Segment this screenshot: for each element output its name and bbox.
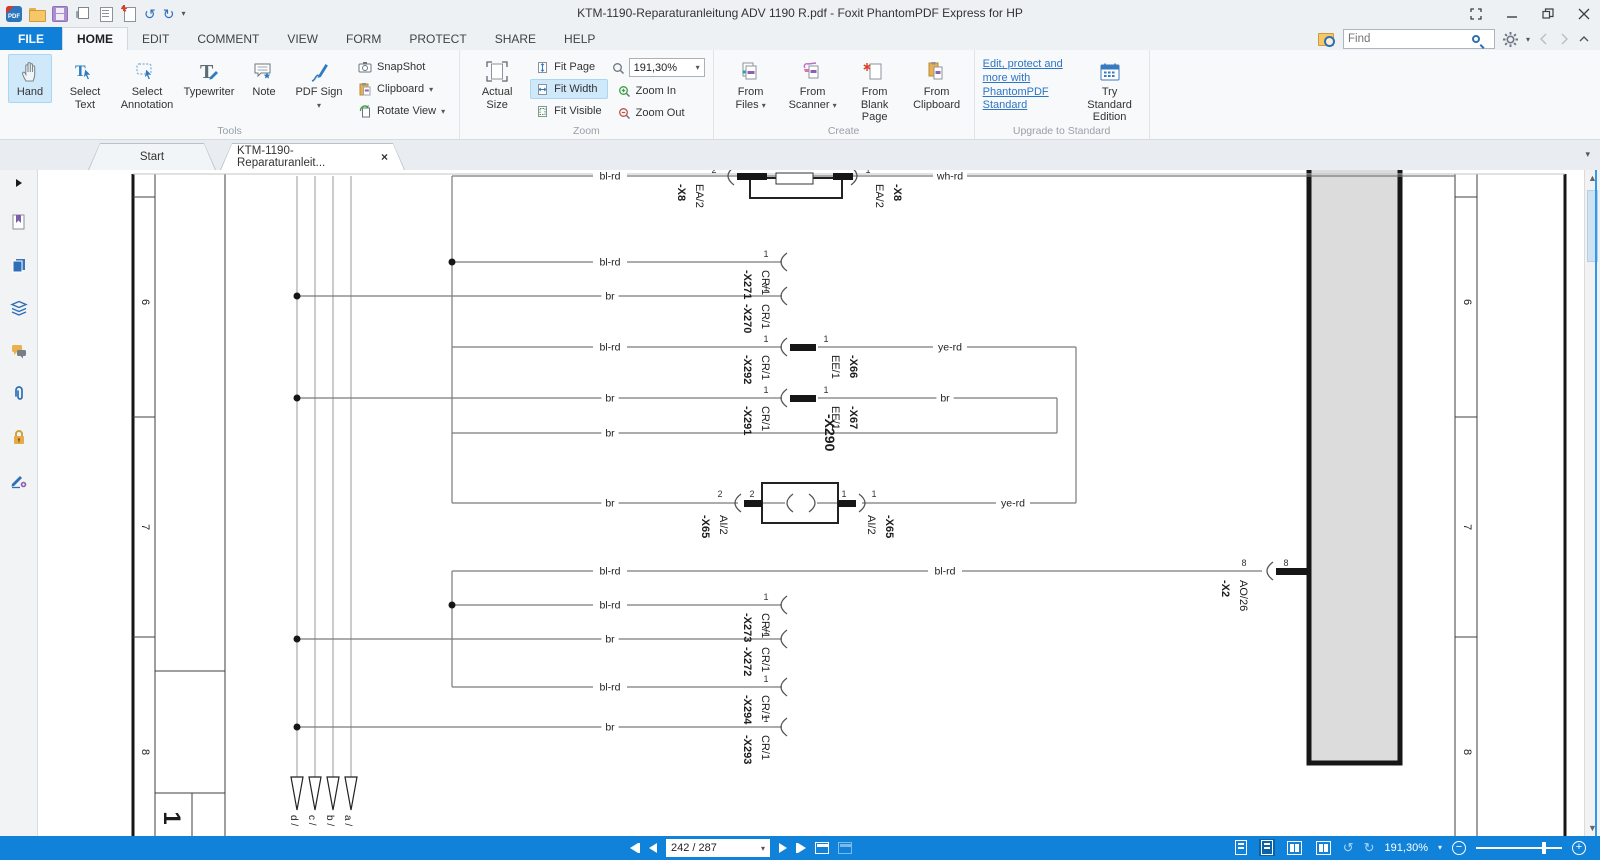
zoom-out-button[interactable]: Zoom Out	[612, 103, 705, 123]
svg-text:1: 1	[763, 674, 768, 684]
zoom-value-combobox[interactable]: 191,30%▾	[629, 58, 705, 77]
status-bar: 242 / 287 ▾ ↺ ↻ 191,30% ▾ − +	[0, 836, 1600, 860]
find-box	[1343, 29, 1495, 49]
document-tab-bar: Start KTM-1190-Reparaturanleit...× ▾	[0, 140, 1600, 170]
svg-text:ye-rd: ye-rd	[1001, 498, 1025, 510]
note-icon	[252, 58, 276, 86]
fullscreen-icon[interactable]	[1470, 8, 1482, 20]
svg-text:2: 2	[749, 489, 754, 499]
svg-text:CR/1: CR/1	[759, 735, 771, 760]
pdf-sign-icon	[307, 58, 331, 86]
hand-icon	[18, 58, 42, 86]
calendar-icon	[1098, 58, 1122, 86]
zoom-slider-thumb[interactable]	[1542, 842, 1546, 854]
tab-comment[interactable]: COMMENT	[183, 27, 273, 50]
svg-text:-X271: -X271	[741, 270, 753, 299]
next-view-icon[interactable]	[1558, 33, 1570, 45]
svg-text:br: br	[940, 393, 950, 405]
facing-view-button[interactable]	[1285, 840, 1304, 856]
previous-page-button[interactable]	[649, 843, 657, 853]
tab-share[interactable]: SHARE	[481, 27, 550, 50]
svg-text:6: 6	[1461, 299, 1473, 305]
button-label: Select Annotation	[121, 86, 174, 111]
button-label: Note	[252, 86, 275, 99]
document-area: d /c /b /a /bl-rdwh-rdbl-rdbrbl-rdye-rdb…	[0, 170, 1600, 836]
svg-text:8: 8	[1461, 749, 1473, 755]
search-icon[interactable]	[1472, 35, 1480, 43]
svg-text:a /: a /	[342, 815, 353, 826]
svg-text:br: br	[605, 291, 615, 303]
rotate-right-icon[interactable]: ↻	[1364, 841, 1375, 855]
select-text-button[interactable]: T Select Text	[56, 54, 114, 115]
close-tab-icon[interactable]: ×	[381, 150, 388, 164]
layers-icon[interactable]	[10, 299, 28, 317]
pdf-sign-button[interactable]: PDF Sign ▾	[290, 54, 348, 115]
close-icon[interactable]	[1578, 8, 1590, 20]
svg-text:1: 1	[865, 170, 870, 175]
svg-text:CR/1: CR/1	[759, 304, 771, 329]
svg-text:-X8: -X8	[891, 184, 903, 201]
svg-text:-X65: -X65	[883, 515, 895, 538]
note-button[interactable]: Note	[242, 54, 286, 103]
group-label-tools: Tools	[0, 125, 459, 137]
email-document-icon[interactable]	[98, 6, 114, 22]
button-label: Typewriter	[184, 86, 235, 99]
svg-text:1: 1	[763, 385, 768, 395]
fit-visible-button[interactable]: Fit Visible	[530, 101, 607, 121]
button-label: Fit Width	[554, 83, 597, 95]
svg-text:bl-rd: bl-rd	[599, 566, 620, 578]
svg-text:1: 1	[763, 249, 768, 259]
button-label: Zoom Out	[636, 107, 685, 119]
zoom-level-icon	[612, 62, 625, 75]
page-thumbnails-icon[interactable]	[10, 256, 28, 274]
wiring-diagram: d /c /b /a /bl-rdwh-rdbl-rdbrbl-rdye-rdb…	[38, 170, 1584, 836]
rotate-left-icon[interactable]: ↺	[1343, 841, 1354, 855]
svg-text:bl-rd: bl-rd	[599, 682, 620, 694]
from-files-icon	[739, 58, 763, 86]
svg-text:bl-rd: bl-rd	[599, 257, 620, 269]
svg-text:7: 7	[1461, 524, 1473, 530]
ribbon-tab-row: FILE HOME EDIT COMMENT VIEW FORM PROTECT…	[0, 27, 1600, 50]
button-label: PDF Sign ▾	[294, 86, 344, 111]
continuous-facing-view-button[interactable]	[1314, 840, 1333, 856]
group-label-zoom: Zoom	[460, 125, 712, 137]
from-scanner-button[interactable]: From Scanner ▾	[784, 54, 842, 115]
page-dropdown-icon: ▾	[761, 844, 765, 853]
svg-text:c /: c /	[306, 815, 317, 826]
svg-text:bl-rd: bl-rd	[599, 171, 620, 183]
app-icon	[6, 6, 22, 22]
svg-text:8: 8	[1241, 558, 1246, 568]
svg-text:-X294: -X294	[741, 695, 753, 725]
button-label: Actual Size	[472, 86, 522, 111]
svg-text:-X290: -X290	[822, 414, 838, 452]
gear-dropdown-icon[interactable]: ▾	[1526, 35, 1530, 44]
tab-file[interactable]: FILE	[0, 27, 62, 50]
doc-tab-label: Start	[140, 151, 164, 163]
save-icon[interactable]	[52, 6, 68, 22]
next-view-button[interactable]	[838, 842, 852, 854]
button-label: Zoom In	[636, 85, 676, 97]
svg-text:-X65: -X65	[699, 515, 711, 538]
select-text-icon: T	[73, 58, 97, 86]
from-scanner-icon	[801, 58, 825, 86]
redo-icon[interactable]: ↻	[163, 6, 175, 22]
from-files-button[interactable]: From Files ▾	[722, 54, 780, 115]
group-label-upgrade: Upgrade to Standard	[975, 125, 1149, 137]
button-label: From Scanner ▾	[788, 86, 838, 111]
print-icon[interactable]	[75, 6, 91, 22]
svg-text:br: br	[605, 634, 615, 646]
svg-text:-X273: -X273	[741, 613, 753, 642]
clipboard-button[interactable]: Clipboard▾	[352, 79, 451, 99]
button-label: Rotate View	[377, 105, 436, 117]
svg-text:2: 2	[711, 170, 716, 175]
svg-text:EE/1: EE/1	[829, 355, 841, 379]
fit-width-button[interactable]: Fit Width	[530, 79, 607, 99]
button-label: Clipboard	[377, 83, 424, 95]
zoom-value: 191,30%	[634, 62, 677, 74]
tab-form[interactable]: FORM	[332, 27, 395, 50]
prev-view-icon[interactable]	[1538, 33, 1550, 45]
tab-edit[interactable]: EDIT	[128, 27, 183, 50]
select-annotation-button[interactable]: Select Annotation	[118, 54, 176, 115]
svg-text:EA/2: EA/2	[693, 184, 705, 208]
tab-home[interactable]: HOME	[62, 27, 128, 50]
vertical-scrollbar[interactable]: ▲ ▼	[1584, 170, 1600, 836]
page-number-combobox[interactable]: 242 / 287 ▾	[666, 839, 770, 857]
actual-size-ic6on	[485, 58, 509, 86]
status-zoom-dropdown-icon[interactable]: ▾	[1438, 843, 1442, 852]
status-zoom-value: 191,30%	[1385, 842, 1428, 854]
svg-text:br: br	[605, 428, 615, 440]
gear-icon[interactable]	[1503, 32, 1518, 47]
undo-icon[interactable]: ↺	[144, 6, 156, 22]
button-label: Hand	[17, 86, 43, 99]
open-file-icon[interactable]	[29, 6, 45, 22]
svg-text:bl-rd: bl-rd	[599, 342, 620, 354]
tab-protect[interactable]: PROTECT	[395, 27, 480, 50]
svg-text:-X293: -X293	[741, 735, 753, 764]
first-page-button[interactable]	[630, 843, 640, 853]
svg-text:-X292: -X292	[741, 355, 753, 384]
svg-text:-X2: -X2	[1219, 580, 1231, 597]
svg-text:8: 8	[139, 749, 151, 755]
doc-tab-label: KTM-1190-Reparaturanleit...	[237, 145, 371, 169]
ribbon-group-upgrade: Edit, protect and more with PhantomPDF S…	[975, 50, 1150, 139]
svg-text:br: br	[605, 393, 615, 405]
svg-text:b /: b /	[324, 815, 335, 826]
ribbon: Hand T Select Text Select Annotation T T…	[0, 50, 1600, 140]
single-page-view-button[interactable]	[1233, 839, 1249, 856]
svg-text:-X291: -X291	[741, 406, 753, 435]
svg-text:AI/2: AI/2	[865, 515, 877, 535]
svg-text:7: 7	[139, 524, 151, 530]
ribbon-group-tools: Hand T Select Text Select Annotation T T…	[0, 50, 460, 139]
bookmarks-icon[interactable]	[10, 213, 28, 231]
svg-text:-X67: -X67	[847, 406, 859, 429]
fit-page-button[interactable]: Fit Page	[530, 57, 607, 77]
rotate-view-button[interactable]: Rotate View▾	[352, 101, 451, 121]
svg-text:-X270: -X270	[741, 304, 753, 333]
button-label: Try Standard Edition	[1083, 86, 1137, 124]
svg-text:1: 1	[841, 489, 846, 499]
security-icon[interactable]	[10, 428, 28, 446]
fit-page-icon	[536, 61, 549, 74]
find-input[interactable]	[1344, 33, 1470, 45]
svg-text:CR/1: CR/1	[759, 270, 771, 295]
fit-visible-icon	[536, 105, 549, 118]
from-clipboard-icon	[925, 58, 949, 86]
from-clipboard-button[interactable]: From Clipboard	[908, 54, 966, 115]
actual-size-button[interactable]: Actual Size	[468, 54, 526, 115]
svg-text:ye-rd: ye-rd	[938, 342, 962, 354]
tab-list-dropdown-icon[interactable]: ▾	[1585, 149, 1590, 160]
typewriter-button[interactable]: T Typewriter	[180, 54, 238, 103]
svg-text:br: br	[605, 498, 615, 510]
button-label: From Clipboard	[912, 86, 962, 111]
button-label: Fit Visible	[554, 105, 601, 117]
try-standard-button[interactable]: Try Standard Edition	[1079, 54, 1141, 128]
button-label: From Files ▾	[726, 86, 776, 111]
svg-text:-X8: -X8	[675, 184, 687, 201]
expand-panel-icon[interactable]	[14, 178, 24, 188]
svg-text:CR/1: CR/1	[759, 613, 771, 638]
clipboard-icon	[358, 82, 372, 96]
scroll-down-icon[interactable]: ▼	[1585, 820, 1600, 836]
status-zoom-out-button[interactable]: −	[1452, 841, 1466, 855]
window-title: KTM-1190-Reparaturanleitung ADV 1190 R.p…	[0, 0, 1600, 27]
svg-text:CR/1: CR/1	[759, 695, 771, 720]
zoom-out-icon	[618, 107, 631, 120]
continuous-view-button[interactable]	[1259, 839, 1275, 856]
svg-text:-X66: -X66	[847, 355, 859, 378]
upgrade-link[interactable]: Edit, protect and more with PhantomPDF S…	[983, 58, 1075, 113]
next-page-button[interactable]	[779, 843, 787, 853]
pdf-page-canvas[interactable]: d /c /b /a /bl-rdwh-rdbl-rdbrbl-rdye-rdb…	[38, 170, 1584, 836]
svg-text:AI/2: AI/2	[717, 515, 729, 535]
from-blank-page-button[interactable]: From Blank Page	[846, 54, 904, 128]
zoom-in-icon	[618, 85, 631, 98]
snapshot-icon	[358, 60, 372, 74]
svg-text:8: 8	[1283, 558, 1288, 568]
previous-view-button[interactable]	[815, 842, 829, 854]
svg-text:-X272: -X272	[741, 647, 753, 676]
doc-tab-start[interactable]: Start	[88, 143, 216, 170]
attachments-icon[interactable]	[10, 385, 28, 403]
button-label: From Blank Page	[850, 86, 900, 124]
svg-text:bl-rd: bl-rd	[599, 600, 620, 612]
svg-text:CR/1: CR/1	[759, 647, 771, 672]
fit-width-icon	[536, 83, 549, 96]
ribbon-group-zoom: Actual Size Fit Page Fit Width Fit Visib…	[460, 50, 713, 139]
svg-text:CR/1: CR/1	[759, 355, 771, 380]
svg-text:6: 6	[139, 299, 151, 305]
title-bar: ↺ ↻ ▾ KTM-1190-Reparaturanleitung ADV 11…	[0, 0, 1600, 27]
typewriter-icon: T	[197, 58, 221, 86]
svg-text:CR/1: CR/1	[759, 406, 771, 431]
digital-signatures-icon[interactable]	[10, 471, 28, 489]
hand-tool-button[interactable]: Hand	[8, 54, 52, 103]
svg-text:wh-rd: wh-rd	[936, 171, 963, 183]
collapse-ribbon-icon[interactable]	[1578, 33, 1590, 45]
navigation-panel-strip	[0, 170, 38, 836]
doc-tab-ktm[interactable]: KTM-1190-Reparaturanleit...×	[220, 143, 405, 170]
toolbar-overflow-icon[interactable]: ▾	[181, 9, 185, 18]
last-page-button[interactable]	[796, 843, 806, 853]
rotate-view-icon	[358, 104, 372, 118]
svg-text:1: 1	[763, 592, 768, 602]
ribbon-group-create: From Files ▾ From Scanner ▾ From Blank P…	[714, 50, 975, 139]
svg-text:T: T	[200, 61, 214, 83]
quick-access-toolbar: ↺ ↻ ▾	[0, 6, 185, 22]
svg-text:bl-rd: bl-rd	[934, 566, 955, 578]
restore-icon[interactable]	[1542, 8, 1554, 20]
svg-text:br: br	[605, 722, 615, 734]
from-blank-page-icon	[863, 58, 887, 86]
select-annotation-icon	[135, 58, 159, 86]
svg-text:2: 2	[717, 489, 722, 499]
svg-text:1: 1	[823, 334, 828, 344]
button-label: Select Text	[60, 86, 110, 111]
button-label: SnapShot	[377, 61, 425, 73]
svg-text:1: 1	[871, 489, 876, 499]
status-zoom-in-button[interactable]: +	[1572, 841, 1586, 855]
scroll-up-icon[interactable]: ▲	[1585, 170, 1600, 186]
zoom-in-button[interactable]: Zoom In	[612, 81, 705, 101]
svg-text:1: 1	[158, 811, 185, 824]
svg-text:EA/2: EA/2	[873, 184, 885, 208]
new-document-icon[interactable]	[121, 6, 137, 22]
button-label: Fit Page	[554, 61, 595, 73]
tab-help[interactable]: HELP	[550, 27, 609, 50]
window-edge-accent	[1595, 170, 1597, 836]
svg-text:AO/26: AO/26	[1237, 580, 1249, 611]
comments-icon[interactable]	[10, 342, 28, 360]
zoom-slider[interactable]	[1476, 847, 1562, 849]
search-folder-icon[interactable]	[1318, 32, 1335, 47]
svg-text:d /: d /	[288, 815, 299, 826]
snapshot-button[interactable]: SnapShot	[352, 57, 451, 77]
svg-text:1: 1	[763, 334, 768, 344]
tab-view[interactable]: VIEW	[273, 27, 332, 50]
group-label-create: Create	[714, 125, 974, 137]
svg-text:1: 1	[823, 385, 828, 395]
minimize-icon[interactable]	[1506, 8, 1518, 20]
page-indicator: 242 / 287	[671, 842, 717, 854]
